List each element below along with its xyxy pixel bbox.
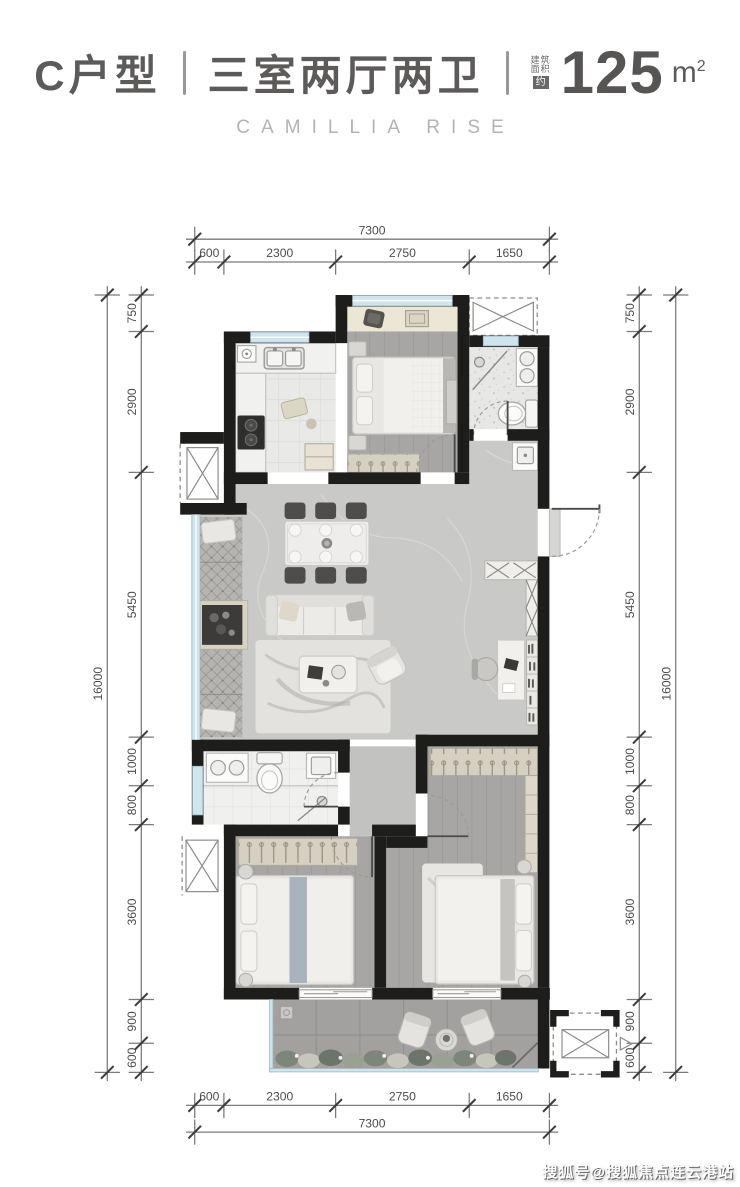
entry-vanity-icon [512, 443, 537, 471]
desk-chair-icon [472, 658, 498, 681]
bed-runner [289, 877, 306, 983]
dim-top-seg-1: 2300 [266, 246, 293, 260]
area-value: 125 [561, 38, 664, 107]
page: { "header": { "unit_label": "C户型", "layo… [0, 0, 740, 1187]
window-glass [483, 336, 518, 346]
bed-right [435, 876, 534, 984]
toilet-icon [498, 400, 537, 427]
window-glass [193, 766, 203, 815]
coffee-table-icon [299, 656, 357, 693]
pillow-icon [357, 364, 373, 392]
dim-right-seg-7: 600 [623, 1047, 637, 1067]
bedroom-left [236, 836, 372, 987]
dresser-icon [446, 380, 456, 424]
sofa [266, 595, 374, 635]
tea-table-icon [200, 601, 248, 650]
layout-label: 三室两厅两卫 [208, 42, 484, 103]
wardrobe-top-bedroom [348, 454, 420, 472]
floor-plan: 6002300275016507300600230027501650730075… [83, 222, 700, 1160]
nightstand-icon [239, 973, 253, 987]
dining-chair-icon [285, 567, 306, 584]
project-subtitle: CAMILLIA RISE [0, 117, 740, 139]
title-divider-icon [183, 51, 186, 95]
ac-platform-icon [469, 298, 537, 335]
pillow-icon [201, 708, 236, 732]
bowl-icon [306, 418, 317, 429]
pillow-icon [516, 884, 532, 924]
dining-chair-icon [346, 567, 367, 584]
dim-left-seg-0: 750 [125, 303, 139, 323]
plan-title: C户型 三室两厅两卫 建筑 面积 约 125 m2 [0, 38, 740, 107]
laundry-counter-icon [206, 753, 248, 782]
wardrobe-icon [238, 838, 357, 865]
bedroom-top-bay-floor [347, 307, 457, 332]
dim-right-seg-1: 2900 [623, 388, 637, 415]
sliding-door-icon [299, 990, 372, 998]
dining-chair-icon [346, 502, 367, 519]
balcony-glass [270, 1068, 539, 1071]
area-prefix-line: 面积 [531, 65, 551, 74]
dim-bottom-total-0: 7300 [359, 1116, 386, 1130]
kitchen-sink-icon [264, 348, 304, 369]
desk [497, 640, 524, 700]
area-unit: m2 [672, 56, 706, 90]
side-table-icon [435, 1029, 457, 1051]
flue-shaft-top-icon [180, 444, 224, 503]
dim-left-seg-5: 3600 [125, 898, 139, 925]
dim-left-seg-7: 600 [125, 1047, 139, 1067]
dim-left-seg-1: 2900 [125, 388, 139, 415]
dim-bottom-seg-0: 600 [199, 1090, 219, 1104]
entry-threshold [549, 509, 560, 557]
equipment-platform-icon [553, 1013, 632, 1074]
dim-right-seg-4: 800 [623, 795, 637, 815]
area-approx-badge: 约 [533, 76, 549, 89]
header: C户型 三室两厅两卫 建筑 面积 约 125 m2 CAMILLIA RISE [0, 0, 740, 139]
dim-right-total-0: 16000 [659, 667, 673, 701]
balcony-glass [270, 1000, 273, 1072]
kitchen-corner-unit [237, 346, 255, 363]
dim-left-seg-3: 1000 [125, 748, 139, 775]
pillow-icon [241, 931, 257, 971]
pillow-icon [516, 931, 532, 971]
nightstand-icon [238, 864, 253, 879]
dim-left-total-0: 16000 [91, 667, 105, 701]
dining-chair-icon [315, 502, 336, 519]
dim-top-seg-3: 1650 [496, 246, 523, 260]
dim-left-seg-2: 5450 [125, 591, 139, 618]
vanity-icon [516, 348, 537, 386]
papers-icon [503, 684, 515, 693]
corridor-floor [350, 746, 416, 836]
wardrobe-icon [430, 748, 537, 775]
flue-shaft-mid-icon [182, 836, 224, 895]
dim-top-seg-2: 2750 [389, 246, 416, 260]
nightstand-icon [349, 435, 366, 450]
pillow-icon [357, 397, 373, 425]
dim-top-seg-0: 600 [199, 246, 219, 260]
nightstand-icon [349, 342, 366, 357]
dim-left-seg-6: 900 [125, 1011, 139, 1031]
nightstand-icon [518, 975, 531, 988]
dim-left-seg-4: 800 [125, 795, 139, 815]
dining-chair-icon [285, 502, 306, 519]
sliding-door-icon [433, 990, 501, 998]
pillow-icon [278, 600, 300, 622]
nightstand-icon [517, 860, 531, 874]
dim-top-total-0: 7300 [359, 223, 386, 237]
dim-right-seg-3: 1000 [623, 748, 637, 775]
bed-left [236, 876, 354, 985]
dim-right-seg-6: 900 [623, 1011, 637, 1031]
area-prefix: 建筑 面积 约 [531, 56, 551, 90]
unit-name: C户型 [34, 42, 160, 103]
dim-right-seg-0: 750 [623, 303, 637, 323]
dining-chair-icon [315, 567, 336, 584]
drain-box-icon [280, 1006, 293, 1019]
watermark: 搜狐号@搜狐焦点连云港站 [542, 1161, 734, 1182]
dim-bottom-seg-1: 2300 [266, 1090, 293, 1104]
pillow-icon [201, 519, 236, 544]
toilet-icon [257, 753, 282, 793]
dim-right-seg-2: 5450 [623, 591, 637, 618]
fridge-icon [305, 444, 333, 470]
sink-icon [306, 753, 335, 778]
pillow-icon [241, 884, 257, 924]
dim-right-seg-5: 3600 [623, 898, 637, 925]
dim-bottom-seg-2: 2750 [389, 1090, 416, 1104]
floor-plan-svg: 6002300275016507300600230027501650730075… [83, 222, 700, 1160]
stove-icon [237, 416, 264, 450]
pillow-icon [345, 601, 366, 622]
bookshelf-icon [527, 640, 538, 725]
closet-column-icon [525, 776, 538, 873]
bed-top [353, 357, 455, 434]
dim-bottom-seg-3: 1650 [496, 1090, 523, 1104]
title-divider-icon [506, 51, 509, 95]
dining-set [285, 502, 370, 583]
